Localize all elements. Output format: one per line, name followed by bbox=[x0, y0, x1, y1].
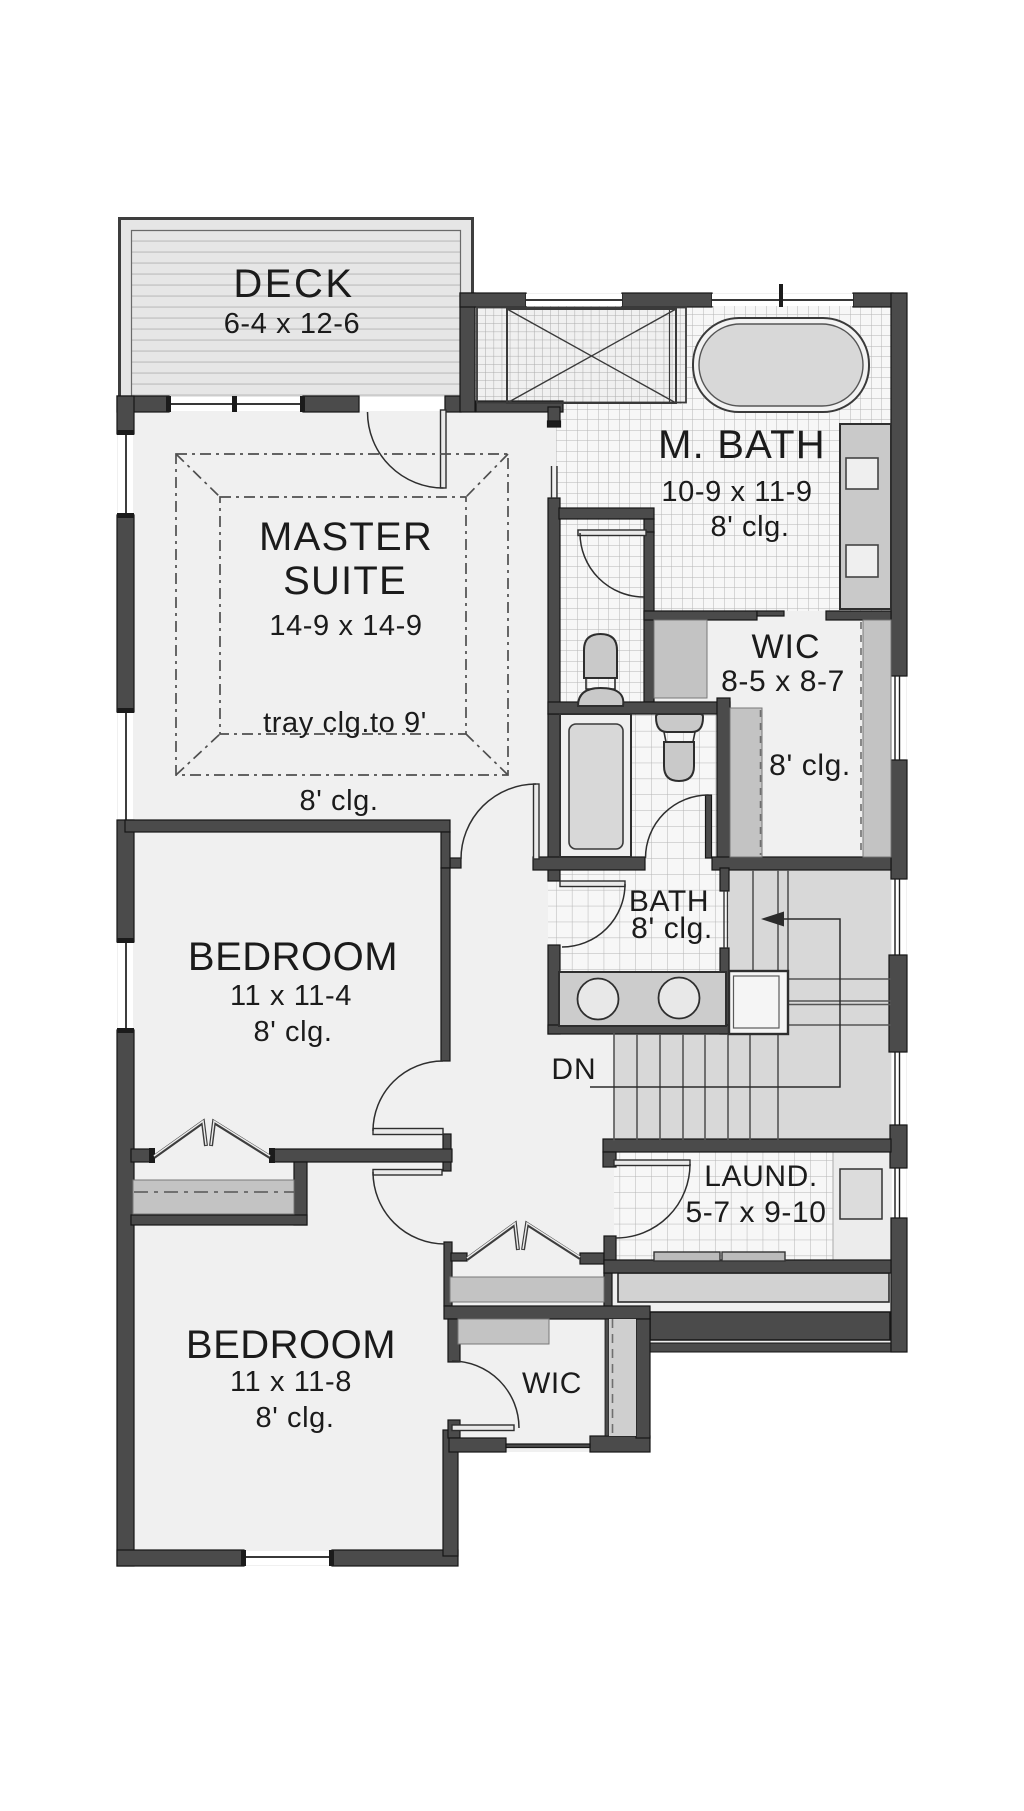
svg-text:14-9 x 14-9: 14-9 x 14-9 bbox=[269, 610, 422, 642]
svg-text:8' clg.: 8' clg. bbox=[631, 912, 713, 945]
svg-text:BEDROOM: BEDROOM bbox=[188, 935, 398, 979]
svg-text:WIC: WIC bbox=[522, 1367, 582, 1400]
svg-text:8' clg.: 8' clg. bbox=[255, 1402, 334, 1434]
svg-text:DN: DN bbox=[551, 1053, 596, 1086]
svg-text:8' clg.: 8' clg. bbox=[710, 511, 789, 543]
svg-text:tray clg.to 9': tray clg.to 9' bbox=[263, 707, 427, 739]
svg-text:8' clg.: 8' clg. bbox=[253, 1016, 332, 1048]
svg-text:8' clg.: 8' clg. bbox=[299, 785, 378, 817]
svg-text:11 x 11-8: 11 x 11-8 bbox=[230, 1366, 352, 1398]
svg-text:5-7 x 9-10: 5-7 x 9-10 bbox=[685, 1196, 826, 1229]
svg-text:WIC: WIC bbox=[751, 628, 820, 666]
svg-text:8-5 x 8-7: 8-5 x 8-7 bbox=[721, 665, 845, 698]
svg-text:11 x 11-4: 11 x 11-4 bbox=[230, 980, 352, 1012]
svg-text:SUITE: SUITE bbox=[283, 559, 407, 603]
svg-text:DECK: DECK bbox=[233, 262, 354, 306]
svg-text:LAUND.: LAUND. bbox=[704, 1160, 818, 1193]
svg-text:10-9 x 11-9: 10-9 x 11-9 bbox=[661, 476, 812, 508]
svg-text:8' clg.: 8' clg. bbox=[769, 749, 851, 782]
svg-text:MASTER: MASTER bbox=[259, 515, 433, 559]
svg-text:M. BATH: M. BATH bbox=[658, 423, 826, 467]
svg-text:BEDROOM: BEDROOM bbox=[186, 1323, 396, 1367]
svg-text:6-4 x 12-6: 6-4 x 12-6 bbox=[224, 308, 361, 340]
